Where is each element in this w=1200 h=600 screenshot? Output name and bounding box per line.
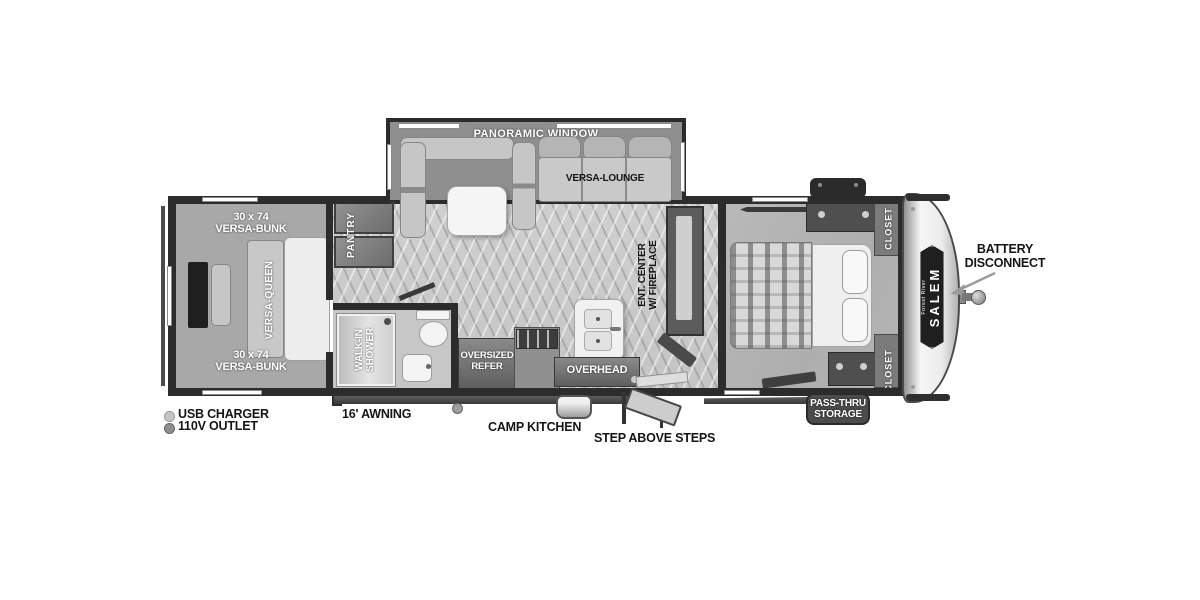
pantry-cabinet-upper [334, 202, 394, 234]
pass-thru-line2: STORAGE [814, 409, 862, 420]
bunk-top-name: VERSA-BUNK [215, 223, 286, 235]
versa-lounge-back-cushion-3 [628, 136, 672, 158]
steps-label: STEP ABOVE STEPS [594, 431, 715, 445]
shower-label-line2: SHOWER [366, 328, 377, 372]
dresser-top-knob1-icon [818, 211, 825, 218]
overhead-label: OVERHEAD [554, 364, 640, 376]
camp-kitchen-label: CAMP KITCHEN [488, 420, 581, 434]
battery-disconnect-arrow-icon [945, 268, 1000, 298]
bunk-bottom-label: 30 x 74 VERSA-BUNK [176, 349, 326, 374]
queen-bed-plaid-cover [730, 242, 812, 349]
battery-disconnect-label: BATTERY DISCONNECT [958, 242, 1052, 270]
outlet-110v-icon [164, 423, 175, 434]
sink-drain-lower-icon [596, 339, 600, 343]
ent-center-label: ENT. CENTER W/ FIREPLACE [636, 225, 662, 325]
bunk-window-left [167, 266, 172, 326]
rear-bumper [161, 206, 165, 386]
bunk-window-top [202, 197, 258, 202]
bunk-room-wall-lower [326, 352, 333, 396]
roof-box-screw1-icon [818, 183, 822, 187]
pantry-cabinet-lower [334, 236, 394, 268]
slideout-side-window-left [387, 144, 392, 190]
salem-logo-text: SALEM [928, 267, 942, 328]
toilet-tank [416, 310, 450, 320]
dresser-bottom-knob2-icon [860, 363, 867, 370]
bedroom-valance-bar [740, 207, 808, 212]
dresser-bottom-knob1-icon [836, 363, 843, 370]
battery-label-line1: BATTERY [977, 242, 1033, 256]
bunk-window-bottom [202, 390, 262, 395]
versa-lounge-back-cushion-1 [538, 136, 581, 158]
awning-support-icon [452, 403, 463, 414]
pass-thru-line1: PASS-THRU [810, 398, 866, 409]
bed-pillow-bottom [842, 298, 868, 342]
pantry-label: PANTRY [346, 205, 358, 265]
bedroom-window-top [752, 197, 808, 202]
refer-label-line2: REFER [471, 362, 502, 373]
dinette-table [447, 186, 507, 236]
sink-faucet-icon [426, 364, 431, 369]
roof-box-screw2-icon [854, 183, 858, 187]
shower-head-icon [384, 318, 391, 325]
camp-kitchen-unit [556, 395, 592, 419]
front-cap-screw1-icon [911, 207, 915, 211]
ent-center-label-line2: W/ FIREPLACE [649, 240, 660, 309]
bedroom-wall [718, 196, 726, 396]
pass-thru-storage-badge: PASS-THRU STORAGE [806, 393, 870, 425]
slideout-side-window-right [680, 142, 685, 192]
bunk-room-tv [188, 262, 208, 328]
awning-label: 16' AWNING [342, 407, 411, 421]
roof-box [810, 178, 866, 198]
bedroom-dresser-top [806, 202, 880, 232]
versa-queen-bed [284, 237, 330, 361]
bedroom-window-bottom [724, 390, 760, 395]
oversized-refer-label: OVERSIZED REFER [458, 351, 516, 372]
stove-cooktop [516, 329, 558, 349]
versa-lounge-label: VERSA-LOUNGE [538, 173, 672, 184]
bunk-top-label: 30 x 74 VERSA-BUNK [176, 211, 326, 236]
bunk-bottom-name: VERSA-BUNK [215, 361, 286, 373]
salem-logo-badge: Forest River SALEM [919, 245, 945, 349]
bunk-top-size: 30 x 74 [233, 211, 268, 223]
awning-bar [334, 396, 644, 404]
front-cap-trim-top [906, 194, 950, 201]
sink-drain-upper-icon [596, 317, 600, 321]
front-cap-screw2-icon [911, 385, 915, 389]
ent-center-face [676, 216, 692, 320]
awning-bar-front [704, 397, 808, 404]
bunk-room-wall-upper [326, 196, 333, 300]
versa-queen-label: VERSA-QUEEN [263, 240, 277, 360]
slide-sofa-right-arm [512, 142, 536, 230]
versa-lounge-back-cushion-2 [583, 136, 626, 158]
bedroom-dresser-bottom [828, 352, 880, 386]
usb-charger-icon [164, 411, 175, 422]
closet-top-label: CLOSET [884, 203, 895, 255]
bathroom-wall-right [451, 303, 458, 388]
sink-faucet [610, 327, 621, 331]
bed-pillow-top [842, 250, 868, 294]
floorplan-canvas: PANORAMIC WINDOW VERSA-LOUNGE 30 x 74 VE… [0, 0, 1200, 600]
toilet-bowl [419, 321, 448, 347]
outlet-110v-label: 110V OUTLET [178, 419, 258, 433]
walk-in-shower-label: WALK-IN SHOWER [354, 315, 378, 385]
bathroom-wall-top [333, 303, 458, 310]
slide-sofa-left-arm [400, 142, 426, 238]
bottom-wall [168, 388, 906, 396]
dresser-top-knob2-icon [862, 211, 869, 218]
front-cap-trim-bottom [906, 394, 950, 401]
